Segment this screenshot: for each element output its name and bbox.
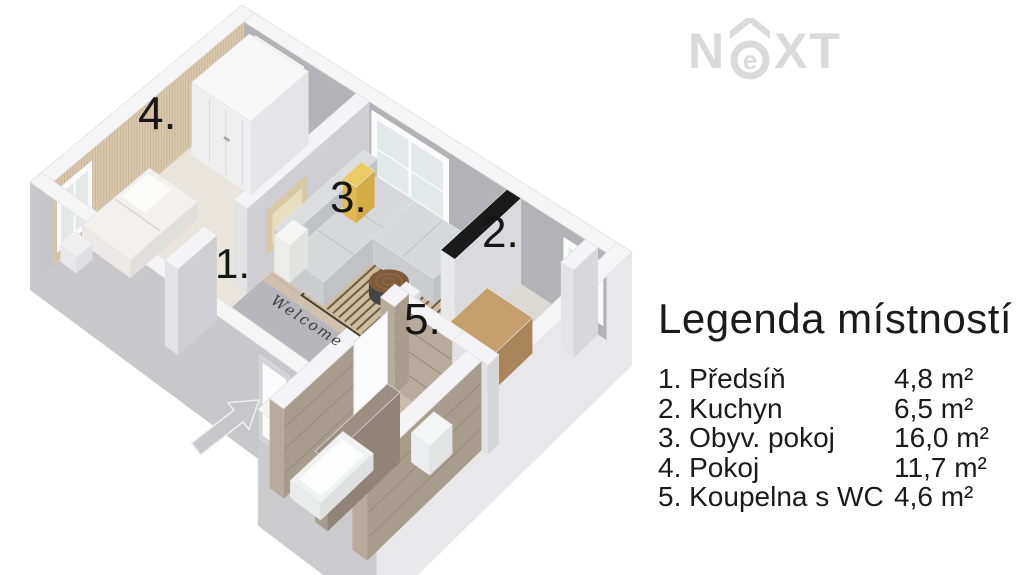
legend-rows: 1. Předsíň4,8 m²2. Kuchyn6,5 m²3. Obyv. … xyxy=(658,364,1008,512)
legend-item-name: 1. Předsíň xyxy=(658,363,786,394)
legend-item: 3. Obyv. pokoj16,0 m² xyxy=(658,423,1008,453)
legend-title: Legenda místností xyxy=(658,296,1008,342)
legend-item-area: 11,7 m² xyxy=(894,453,987,483)
legend-item-name: 5. Koupelna s WC xyxy=(658,481,884,512)
logo-letter-e: e xyxy=(743,45,757,75)
legend-item: 5. Koupelna s WC4,6 m² xyxy=(658,482,1008,512)
room-number-label-3: 3. xyxy=(330,173,367,222)
legend-item-area: 4,6 m² xyxy=(894,482,973,512)
floor-plan-stage: 4.3.1.2.5.Welcome N e XT Legenda místnos… xyxy=(0,0,1024,575)
legend-item: 4. Pokoj11,7 m² xyxy=(658,453,1008,483)
room-number-label-5: 5. xyxy=(404,295,441,344)
legend-item-area: 16,0 m² xyxy=(894,423,989,453)
room-number-label-1: 1. xyxy=(215,240,250,287)
logo-letter-n: N xyxy=(688,22,726,80)
logo-house-e-icon: e xyxy=(727,18,773,82)
room-number-label-4: 4. xyxy=(138,87,176,139)
legend-item-area: 6,5 m² xyxy=(894,394,973,424)
logo-letters-xt: XT xyxy=(774,22,842,80)
roof-icon xyxy=(730,18,770,39)
room-number-label-2: 2. xyxy=(482,208,519,257)
legend-item-name: 4. Pokoj xyxy=(658,452,759,483)
legend-item: 1. Předsíň4,8 m² xyxy=(658,364,1008,394)
legend-item-name: 3. Obyv. pokoj xyxy=(658,422,835,453)
legend-item-name: 2. Kuchyn xyxy=(658,393,783,424)
legend-item: 2. Kuchyn6,5 m² xyxy=(658,394,1008,424)
room-legend: Legenda místností 1. Předsíň4,8 m²2. Kuc… xyxy=(658,296,1008,512)
page: { "logo": { "letter_n": "N", "letter_e":… xyxy=(0,0,1024,575)
legend-item-area: 4,8 m² xyxy=(894,364,973,394)
next-logo: N e XT xyxy=(688,18,842,80)
